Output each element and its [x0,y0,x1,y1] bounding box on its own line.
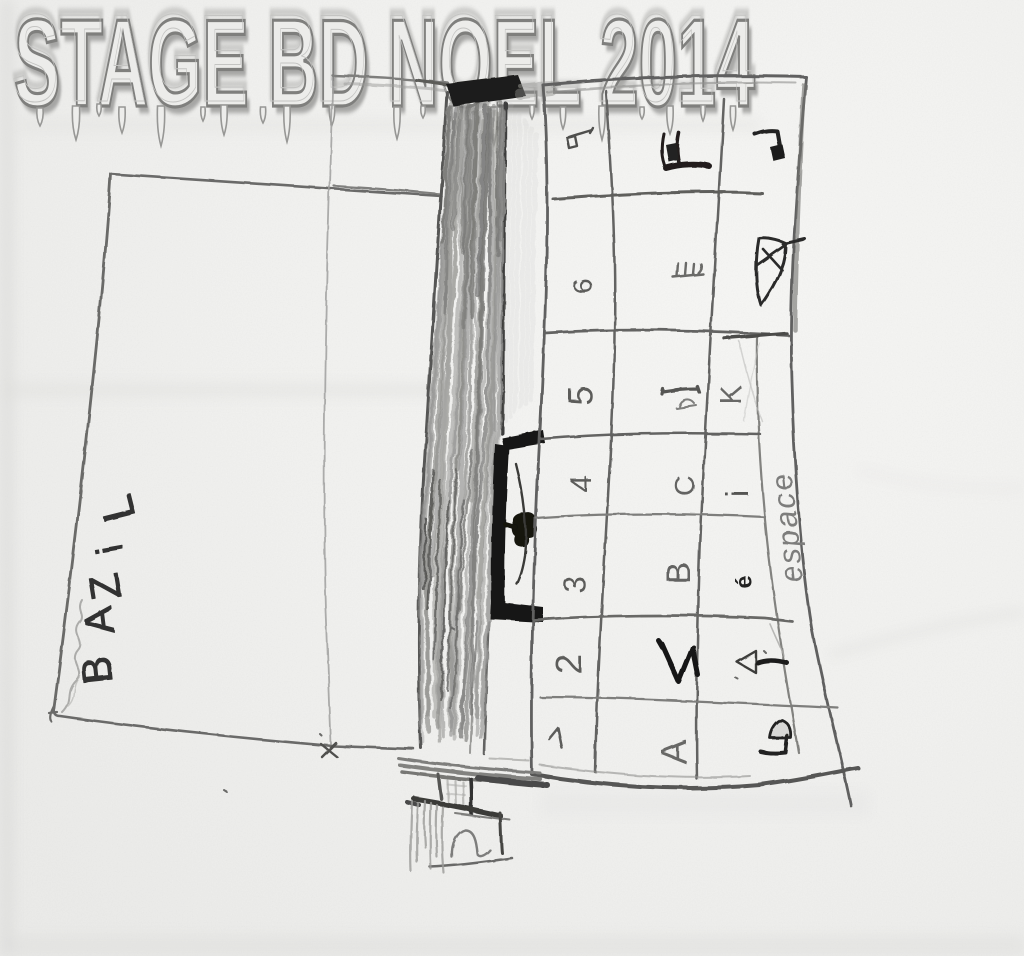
svg-text:B: B [660,562,697,584]
svg-text:A: A [76,604,123,636]
svg-text:3: 3 [557,576,592,593]
svg-text:6: 6 [568,279,598,294]
svg-text:A: A [653,740,694,764]
svg-text:C: C [669,476,700,496]
svg-text:i: i [719,490,755,497]
svg-text:é: é [731,576,758,589]
svg-text:K: K [715,385,748,405]
svg-text:5: 5 [562,386,600,405]
svg-text:4: 4 [565,475,598,492]
svg-text:2: 2 [548,654,589,674]
